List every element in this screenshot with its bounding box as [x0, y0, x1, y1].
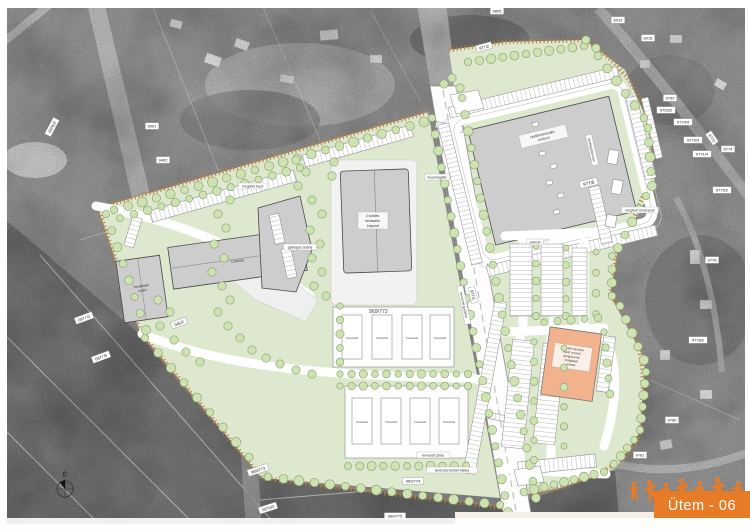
- svg-text:gyalogos sétány: gyalogos sétány: [288, 245, 313, 249]
- tree-icon: [308, 254, 316, 262]
- tree-icon: [476, 194, 484, 202]
- svg-text:9770/4: 9770/4: [677, 120, 690, 125]
- tree-icon: [130, 210, 138, 218]
- tree-icon: [520, 428, 527, 435]
- tree-icon: [380, 462, 388, 470]
- tree-icon: [371, 485, 381, 495]
- tree-icon: [492, 443, 499, 450]
- tree-icon: [450, 228, 459, 237]
- tree-icon: [560, 423, 567, 430]
- tree-icon: [136, 309, 144, 317]
- tree-icon: [371, 383, 378, 390]
- tree-icon: [279, 474, 288, 483]
- tree-icon: [440, 80, 448, 88]
- tree-icon: [603, 64, 612, 73]
- tree-icon: [199, 191, 207, 199]
- tree-icon: [268, 172, 276, 180]
- tree-icon: [594, 314, 602, 322]
- parcel-label: 9770/3: [684, 137, 703, 144]
- tree-icon: [431, 130, 439, 138]
- tree-icon: [645, 138, 654, 147]
- tree-icon: [593, 249, 599, 255]
- tree-icon: [194, 182, 203, 191]
- site-plan-drawing: Multifunkcionális centrum 977/8: [0, 0, 750, 530]
- tree-icon: [170, 336, 178, 344]
- svg-text:969/774: 969/774: [406, 479, 421, 484]
- tree-icon: [531, 398, 538, 405]
- tree-icon: [356, 484, 365, 493]
- tree-icon: [530, 358, 537, 365]
- tree-icon: [563, 296, 570, 303]
- tree-icon: [102, 210, 109, 217]
- tree-icon: [600, 468, 607, 475]
- tree-icon: [371, 371, 378, 378]
- tree-icon: [481, 392, 490, 401]
- tree-icon: [226, 296, 234, 304]
- tree-icon: [171, 198, 179, 206]
- tree-icon: [642, 368, 649, 375]
- tree-icon: [630, 436, 637, 443]
- tree-icon: [405, 122, 414, 131]
- tree-icon: [456, 84, 464, 92]
- tree-icon: [248, 346, 256, 354]
- tree-icon: [262, 354, 270, 362]
- tree-icon: [152, 194, 160, 202]
- parcel-label: 969/774: [402, 478, 423, 485]
- tree-icon: [359, 382, 367, 390]
- tree-icon: [415, 462, 423, 470]
- tree-icon: [623, 444, 631, 452]
- parcel-label: 9781: [633, 452, 646, 459]
- tree-icon: [227, 184, 234, 191]
- tree-icon: [607, 278, 616, 287]
- tree-icon: [601, 329, 607, 335]
- tree-icon: [322, 292, 330, 300]
- tree-icon: [434, 146, 443, 155]
- tree-icon: [141, 334, 148, 341]
- svg-text:6012: 6012: [614, 18, 624, 23]
- tree-icon: [499, 53, 507, 61]
- tree-icon: [383, 370, 391, 378]
- tree-icon: [294, 476, 304, 486]
- tree-icon: [637, 414, 646, 423]
- tree-icon: [224, 322, 232, 330]
- tree-icon: [522, 50, 529, 57]
- tree-icon: [561, 364, 568, 371]
- tree-icon: [419, 117, 429, 127]
- svg-text:9780: 9780: [668, 418, 678, 423]
- svg-text:6001: 6001: [148, 124, 158, 129]
- tree-icon: [335, 142, 344, 151]
- tree-icon: [613, 243, 622, 252]
- tree-icon: [316, 240, 324, 248]
- tree-icon: [278, 157, 288, 167]
- svg-text:969/775: 969/775: [388, 514, 403, 519]
- tree-icon: [533, 295, 540, 302]
- parcel-label: 6012: [611, 17, 624, 24]
- tree-icon: [483, 227, 491, 235]
- tree-icon: [131, 293, 138, 300]
- tree-icon: [453, 245, 461, 253]
- svg-text:9402: 9402: [159, 158, 169, 163]
- tree-icon: [621, 231, 629, 239]
- tree-icon: [562, 278, 570, 286]
- tree-icon: [392, 126, 400, 134]
- tree-icon: [510, 377, 519, 386]
- annotation-label: meglévő növényzet: [622, 207, 659, 213]
- tree-icon: [276, 360, 284, 368]
- tree-icon: [449, 494, 459, 504]
- tree-icon: [458, 94, 465, 101]
- parcel-label: 9770/4: [674, 119, 693, 126]
- tree-icon: [307, 149, 316, 158]
- tree-icon: [344, 462, 351, 469]
- tree-icon: [533, 260, 540, 267]
- annotation-label: meglévő fasor: [239, 183, 268, 189]
- parking-row: [510, 244, 532, 316]
- svg-text:meglévő fasor: meglévő fasor: [242, 184, 264, 188]
- svg-text:9776: 9776: [708, 258, 718, 263]
- svg-text:Társasház: Társasház: [414, 420, 427, 424]
- tree-icon: [465, 497, 473, 505]
- svg-text:Társasház: Társasház: [356, 420, 369, 424]
- tree-icon: [292, 366, 300, 374]
- tree-icon: [356, 462, 364, 470]
- tree-icon: [156, 322, 164, 330]
- tree-icon: [485, 244, 494, 253]
- tree-icon: [464, 58, 471, 65]
- tree-icon: [117, 215, 124, 222]
- tree-icon: [220, 254, 228, 262]
- svg-text:9762: 9762: [666, 96, 676, 101]
- tree-icon: [158, 203, 165, 210]
- tree-icon: [218, 282, 226, 290]
- svg-text:Társasház: Társasház: [434, 336, 447, 340]
- small-structure: [607, 149, 619, 165]
- tree-icon: [377, 129, 386, 138]
- parcel-label: 9762: [663, 95, 676, 102]
- tree-icon: [563, 245, 569, 251]
- tree-icon: [428, 114, 435, 121]
- tree-icon: [593, 269, 600, 276]
- tree-icon: [605, 375, 612, 382]
- tree-icon: [603, 359, 611, 367]
- tree-icon: [438, 163, 446, 171]
- north-label: É: [62, 470, 67, 479]
- parking-row: [541, 244, 563, 316]
- tree-icon: [496, 501, 504, 509]
- tree-icon: [461, 111, 469, 119]
- tree-icon: [441, 382, 449, 390]
- tree-icon: [616, 302, 624, 310]
- tree-icon: [579, 472, 589, 482]
- tree-icon: [641, 379, 650, 388]
- parcel-label: 9805: [490, 8, 503, 15]
- annotation-label: gyalogos sétány: [284, 244, 317, 250]
- retail-building-label: 2 szintes bevásárló központ: [358, 212, 388, 229]
- tree-icon: [541, 319, 547, 325]
- tree-icon: [590, 470, 599, 479]
- tree-icon: [498, 311, 506, 319]
- svg-text:Társasház: Társasház: [406, 336, 419, 340]
- annotation-label: tervezési terület határa: [427, 467, 478, 473]
- tree-icon: [530, 456, 537, 463]
- tree-icon: [110, 206, 118, 214]
- tree-icon: [640, 114, 648, 122]
- tree-icon: [444, 196, 451, 203]
- tree-icon: [448, 74, 456, 82]
- tree-icon: [560, 383, 568, 391]
- tree-icon: [530, 377, 538, 385]
- tree-icon: [310, 282, 318, 290]
- tree-icon: [336, 358, 344, 366]
- tree-icon: [321, 146, 329, 154]
- tree-icon: [592, 44, 600, 52]
- tree-icon: [310, 478, 318, 486]
- tree-icon: [520, 488, 528, 496]
- tree-icon: [236, 169, 245, 178]
- tree-icon: [567, 316, 575, 324]
- tree-icon: [336, 330, 344, 338]
- tree-icon: [453, 383, 459, 389]
- tree-icon: [124, 202, 133, 211]
- tree-icon: [417, 382, 425, 390]
- svg-text:buszmegálló: buszmegálló: [427, 175, 446, 179]
- tree-icon: [530, 417, 538, 425]
- tree-icon: [501, 327, 510, 336]
- tree-icon: [251, 166, 259, 174]
- small-structure: [605, 214, 617, 228]
- tree-icon: [464, 382, 471, 389]
- svg-text:Társasház: Társasház: [376, 336, 389, 340]
- tree-icon: [348, 370, 355, 377]
- tree-icon: [639, 390, 649, 400]
- tree-icon: [469, 327, 477, 335]
- tree-icon: [532, 312, 539, 319]
- tree-icon: [616, 451, 625, 460]
- tree-icon: [441, 370, 449, 378]
- tree-icon: [523, 444, 531, 452]
- parcel-label: 9776: [705, 257, 718, 264]
- tree-icon: [611, 76, 621, 86]
- parking-row: [572, 248, 587, 316]
- tree-icon: [402, 489, 411, 498]
- svg-text:tervezett járda: tervezett járda: [422, 453, 444, 457]
- tree-icon: [367, 461, 376, 470]
- tree-icon: [479, 210, 488, 219]
- tree-icon: [143, 206, 152, 215]
- tree-icon: [388, 488, 396, 496]
- tree-icon: [507, 361, 515, 369]
- parcel-label: 6001: [145, 123, 158, 130]
- parcel-label: 9778/2: [689, 337, 708, 344]
- tree-icon: [166, 363, 176, 373]
- tree-icon: [337, 383, 343, 389]
- tree-icon: [561, 345, 567, 351]
- tree-icon: [308, 370, 316, 378]
- tree-icon: [568, 43, 577, 52]
- tree-icon: [642, 192, 649, 199]
- svg-text:9781: 9781: [636, 453, 646, 458]
- tree-icon: [406, 382, 413, 389]
- tree-icon: [403, 462, 410, 469]
- annotation-label: parkoló: [527, 239, 544, 245]
- tree-icon: [634, 342, 642, 350]
- tree-icon: [395, 371, 401, 377]
- tree-icon: [113, 243, 122, 252]
- tree-icon: [485, 410, 493, 418]
- tree-icon: [141, 325, 150, 334]
- tree-icon: [608, 292, 616, 300]
- tree-icon: [219, 423, 228, 432]
- tree-icon: [621, 89, 629, 97]
- tree-icon: [348, 382, 355, 389]
- parcel-label: 9775/2: [713, 187, 732, 194]
- tree-icon: [516, 410, 525, 419]
- tree-icon: [479, 377, 487, 385]
- tree-icon: [292, 156, 300, 164]
- site-plan-page: Multifunkcionális centrum 977/8: [0, 0, 750, 530]
- tree-icon: [497, 475, 506, 484]
- svg-text:parkoló: parkoló: [529, 240, 540, 244]
- tree-icon: [214, 210, 222, 218]
- tree-icon: [166, 189, 175, 198]
- svg-text:9774: 9774: [724, 147, 734, 152]
- tree-icon: [181, 186, 189, 194]
- tree-icon: [559, 477, 568, 486]
- svg-text:2 szintes bevásárló: 2 szintes bevásárló központ: [365, 214, 381, 228]
- tree-icon: [236, 334, 244, 342]
- tree-icon: [430, 371, 437, 378]
- tree-icon: [417, 370, 425, 378]
- tree-icon: [359, 370, 367, 378]
- tree-icon: [501, 492, 509, 500]
- parcel-label: 9774: [721, 146, 734, 153]
- tree-icon: [529, 485, 539, 495]
- parcel-label: 9402: [156, 157, 169, 164]
- tree-icon: [581, 316, 588, 323]
- tree-icon: [341, 482, 349, 490]
- parcel-label: 9780: [665, 417, 678, 424]
- tree-icon: [264, 473, 272, 481]
- tree-icon: [474, 178, 481, 185]
- tree-icon: [306, 226, 314, 234]
- tree-icon: [245, 453, 253, 461]
- svg-text:Társasház: Társasház: [443, 420, 456, 424]
- tree-icon: [108, 227, 116, 235]
- tree-icon: [492, 277, 500, 285]
- tree-icon: [645, 152, 655, 162]
- tree-icon: [223, 174, 231, 182]
- tree-icon: [627, 328, 637, 338]
- tree-icon: [166, 308, 174, 316]
- tree-icon: [639, 355, 648, 364]
- tree-icon: [196, 358, 204, 366]
- tree-icon: [192, 393, 201, 402]
- tree-icon: [557, 45, 565, 53]
- tree-icon: [561, 404, 568, 411]
- svg-text:9775/2: 9775/2: [716, 188, 729, 193]
- svg-text:9771/4: 9771/4: [696, 152, 709, 157]
- phase-banner: Ütem - 06: [654, 491, 750, 518]
- tree-icon: [630, 101, 639, 110]
- tree-icon: [406, 370, 413, 377]
- tree-icon: [486, 54, 496, 64]
- tree-icon: [383, 382, 391, 390]
- tree-icon: [137, 197, 147, 207]
- tree-icon: [554, 317, 561, 324]
- tree-icon: [608, 252, 615, 259]
- svg-text:9805: 9805: [493, 9, 503, 14]
- tree-icon: [208, 177, 218, 187]
- tree-icon: [592, 289, 600, 297]
- tree-icon: [467, 144, 475, 152]
- svg-text:tervezési terület határa: tervezési terület határa: [435, 468, 470, 472]
- tree-icon: [606, 390, 614, 398]
- tree-icon: [638, 403, 646, 411]
- tree-icon: [255, 176, 262, 183]
- tree-icon: [440, 179, 449, 188]
- tree-icon: [294, 182, 302, 190]
- tree-icon: [644, 124, 652, 132]
- svg-text:9763/2: 9763/2: [660, 108, 673, 113]
- tree-icon: [186, 195, 193, 202]
- tree-icon: [532, 277, 540, 285]
- tree-icon: [494, 293, 503, 302]
- tree-icon: [119, 260, 127, 268]
- svg-text:Társasház: Társasház: [385, 420, 398, 424]
- tree-icon: [308, 196, 316, 204]
- tree-icon: [226, 196, 234, 204]
- tree-icon: [337, 303, 343, 309]
- tree-icon: [533, 48, 542, 57]
- tree-icon: [475, 56, 484, 65]
- tree-icon: [363, 134, 371, 142]
- tree-icon: [180, 379, 188, 387]
- tree-icon: [647, 181, 656, 190]
- tree-icon: [602, 344, 609, 351]
- tree-icon: [608, 265, 616, 273]
- tree-icon: [494, 459, 502, 467]
- tree-icon: [514, 394, 522, 402]
- tree-icon: [476, 361, 483, 368]
- tree-icon: [336, 316, 343, 323]
- tree-icon: [430, 383, 437, 390]
- tree-icon: [182, 348, 190, 356]
- tree-icon: [337, 371, 343, 377]
- tree-icon: [330, 158, 338, 166]
- tree-icon: [395, 383, 401, 389]
- main-parcel-number: 969/772: [369, 309, 388, 315]
- tree-icon: [550, 481, 557, 488]
- tree-icon: [532, 494, 541, 503]
- tree-icon: [563, 262, 570, 269]
- annotation-label: tervezett járda: [417, 452, 450, 458]
- tree-icon: [302, 168, 310, 176]
- tree-icon: [460, 279, 467, 286]
- tree-icon: [206, 409, 213, 416]
- tree-icon: [544, 46, 554, 56]
- tree-icon: [594, 52, 602, 60]
- tree-icon: [489, 261, 496, 268]
- tree-icon: [510, 51, 519, 60]
- tree-icon: [282, 167, 291, 176]
- tree-icon: [531, 339, 537, 345]
- parcel-label: 9771/4: [693, 151, 712, 158]
- tree-icon: [328, 172, 336, 180]
- tree-icon: [231, 437, 241, 447]
- annotation-label: buszmegálló: [425, 174, 450, 180]
